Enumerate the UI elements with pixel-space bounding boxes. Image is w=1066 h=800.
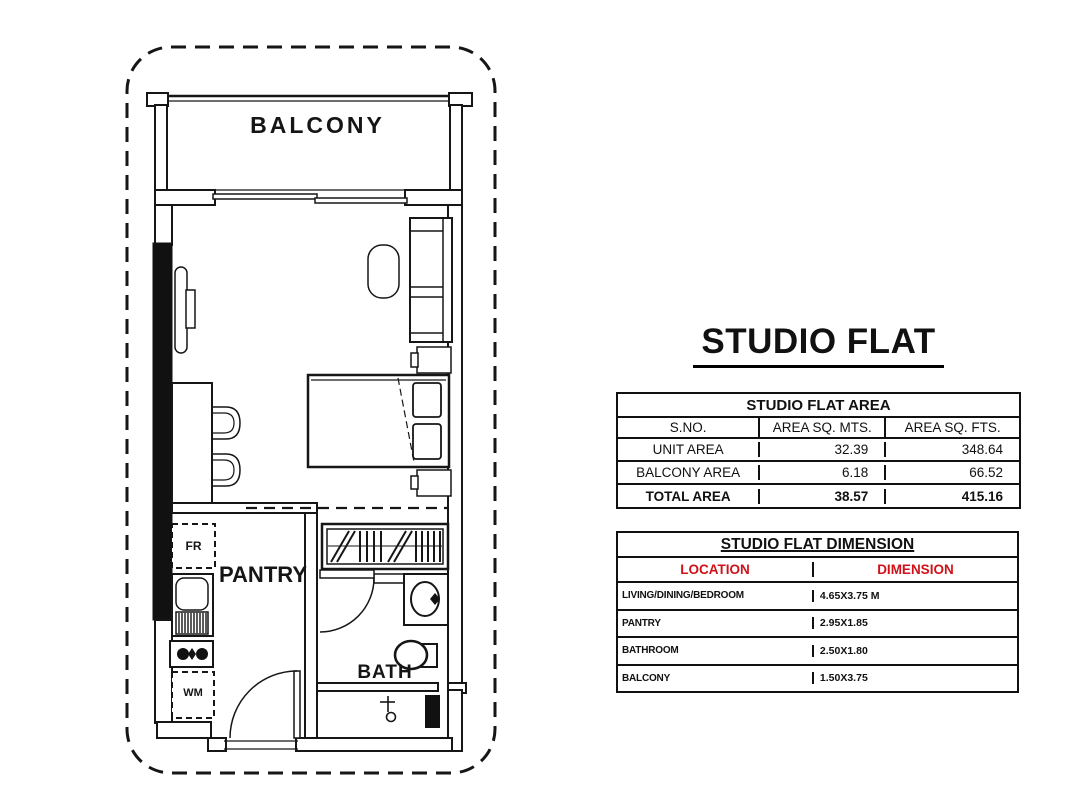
- bath-label: BATH: [350, 662, 420, 684]
- balcony-label: BALCONY: [240, 112, 395, 139]
- row-sq-mts: 6.18: [758, 465, 884, 480]
- row-location: PANTRY: [618, 618, 812, 629]
- row-sq-mts: 38.57: [758, 489, 884, 504]
- table-row: UNIT AREA 32.39 348.64: [618, 439, 1019, 462]
- floor-plan: BALCONY PANTRY BATH FR WM: [0, 0, 560, 800]
- row-dimension: 2.95X1.85: [812, 617, 1017, 629]
- pantry-label: PANTRY: [216, 562, 310, 588]
- washing-machine-label: WM: [172, 687, 214, 699]
- page-title-text: STUDIO FLAT: [693, 322, 943, 368]
- dim-col-dimension: DIMENSION: [812, 562, 1017, 577]
- area-col-sq-fts: AREA SQ. FTS.: [884, 418, 1019, 437]
- area-table: STUDIO FLAT AREA S.NO. AREA SQ. MTS. ARE…: [616, 392, 1021, 509]
- dimension-table-header-row: LOCATION DIMENSION: [618, 558, 1017, 583]
- row-label: BALCONY AREA: [618, 465, 758, 480]
- row-location: BALCONY: [618, 673, 812, 684]
- area-col-sq-mts: AREA SQ. MTS.: [758, 418, 884, 437]
- row-dimension: 2.50X1.80: [812, 645, 1017, 657]
- row-sq-mts: 32.39: [758, 442, 884, 457]
- area-table-title: STUDIO FLAT AREA: [618, 394, 1019, 418]
- row-location: LIVING/DINING/BEDROOM: [618, 590, 812, 601]
- row-sq-fts: 66.52: [884, 465, 1019, 480]
- fridge-label: FR: [172, 539, 215, 553]
- row-sq-fts: 415.16: [884, 489, 1019, 504]
- row-label: UNIT AREA: [618, 442, 758, 457]
- dim-col-location: LOCATION: [618, 562, 812, 577]
- table-row: LIVING/DINING/BEDROOM 4.65X3.75 M: [618, 583, 1017, 611]
- dimension-table-title: STUDIO FLAT DIMENSION: [618, 533, 1017, 558]
- table-row-total: TOTAL AREA 38.57 415.16: [618, 485, 1019, 507]
- page-title: STUDIO FLAT: [616, 322, 1021, 368]
- table-row: BALCONY AREA 6.18 66.52: [618, 462, 1019, 485]
- row-dimension: 1.50X3.75: [812, 672, 1017, 684]
- area-col-sno: S.NO.: [618, 418, 758, 437]
- row-location: BATHROOM: [618, 645, 812, 656]
- table-row: BATHROOM 2.50X1.80: [618, 638, 1017, 666]
- area-table-header-row: S.NO. AREA SQ. MTS. AREA SQ. FTS.: [618, 418, 1019, 439]
- table-row: PANTRY 2.95X1.85: [618, 611, 1017, 639]
- table-row: BALCONY 1.50X3.75: [618, 666, 1017, 692]
- row-label: TOTAL AREA: [618, 489, 758, 504]
- row-dimension: 4.65X3.75 M: [812, 590, 1017, 602]
- row-sq-fts: 348.64: [884, 442, 1019, 457]
- dimension-table: STUDIO FLAT DIMENSION LOCATION DIMENSION…: [616, 531, 1019, 693]
- studio-flat-brochure: BALCONY PANTRY BATH FR WM STUDIO FLAT ST…: [0, 0, 1066, 800]
